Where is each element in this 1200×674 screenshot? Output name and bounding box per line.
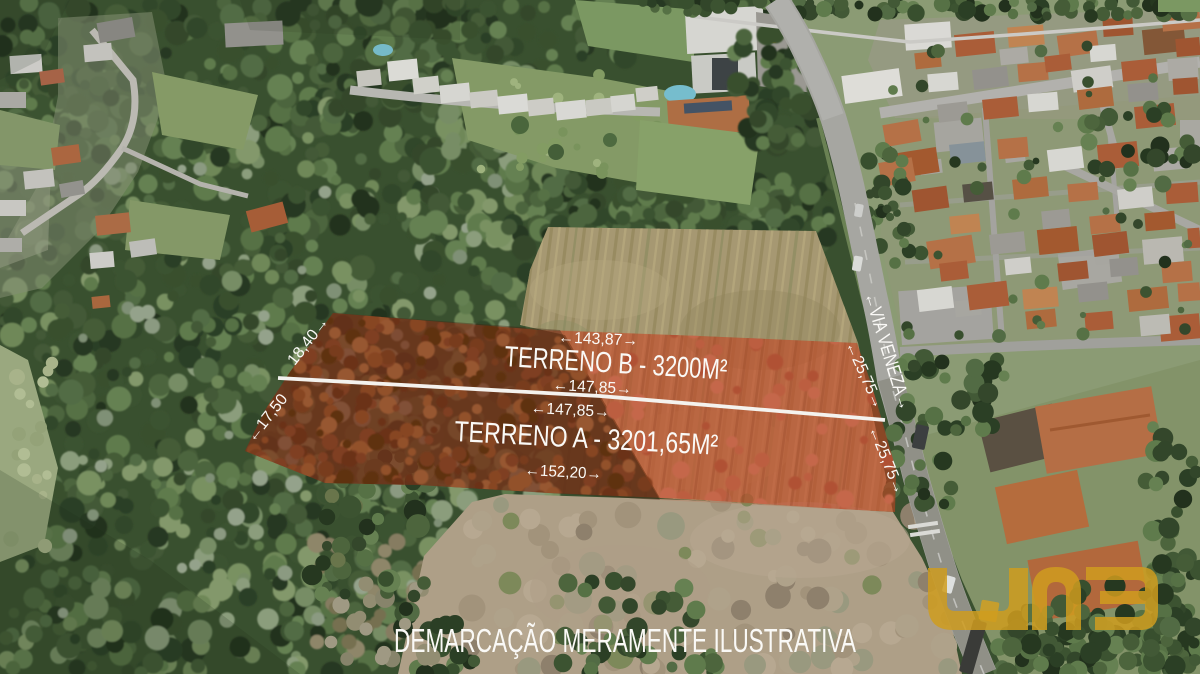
svg-text:DEMARCAÇÃO MERAMENTE ILUSTRATI: DEMARCAÇÃO MERAMENTE ILUSTRATIVA — [394, 622, 856, 659]
